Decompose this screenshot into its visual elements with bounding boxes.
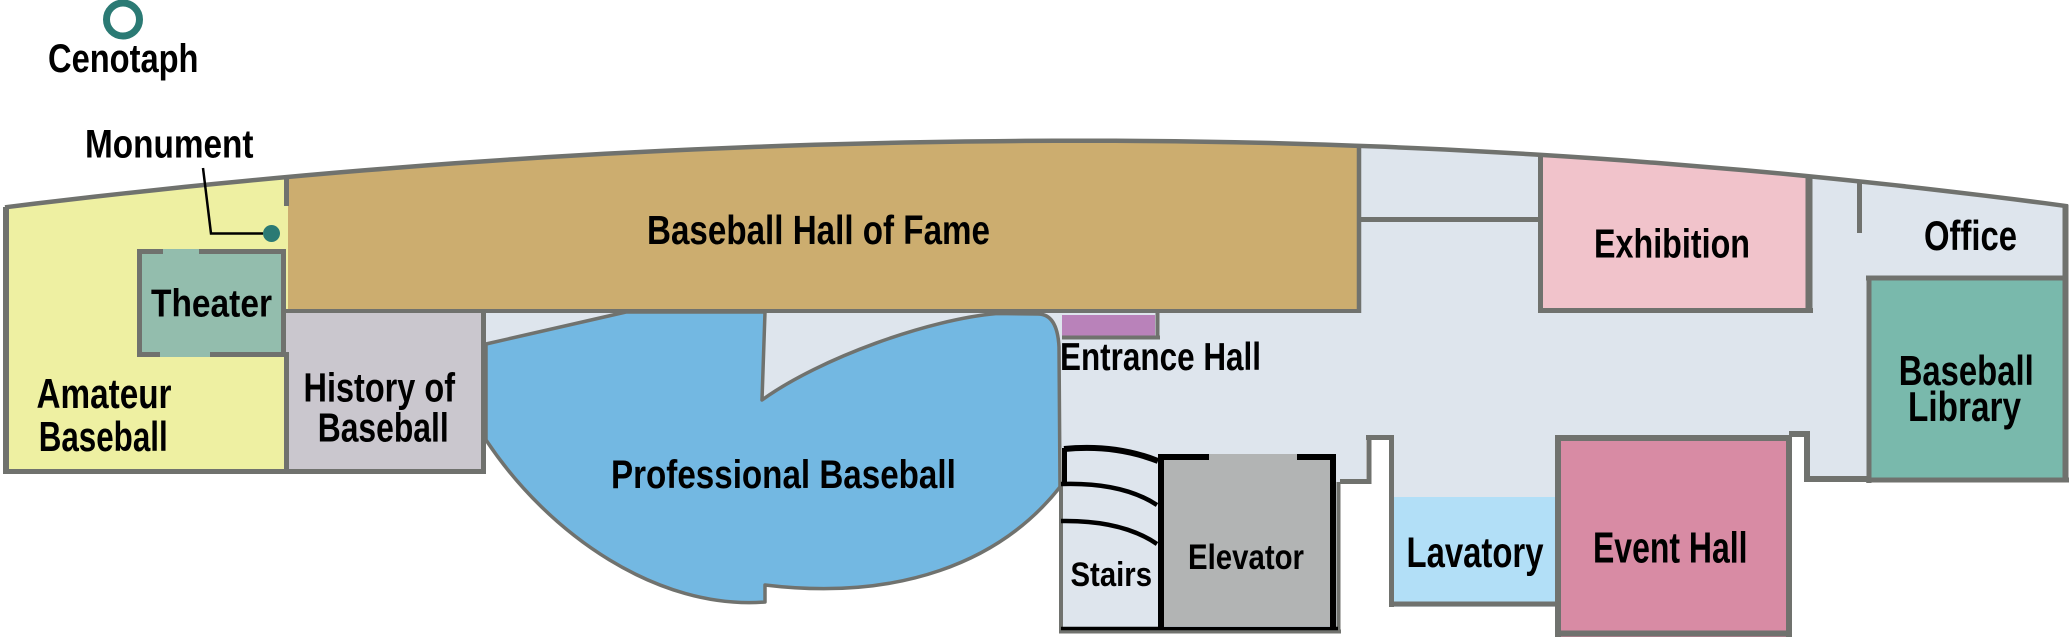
svg-text:Entrance Hall: Entrance Hall bbox=[1060, 336, 1261, 379]
svg-text:Library: Library bbox=[1908, 383, 2021, 430]
svg-text:Amateur: Amateur bbox=[37, 370, 172, 417]
svg-text:Elevator: Elevator bbox=[1188, 537, 1304, 577]
svg-text:Professional Baseball: Professional Baseball bbox=[611, 453, 956, 497]
svg-text:Cenotaph: Cenotaph bbox=[48, 37, 199, 81]
svg-text:Theater: Theater bbox=[151, 283, 272, 326]
svg-text:Baseball: Baseball bbox=[318, 405, 449, 451]
svg-text:Monument: Monument bbox=[85, 123, 254, 167]
svg-text:Stairs: Stairs bbox=[1071, 556, 1153, 594]
svg-text:Baseball: Baseball bbox=[39, 413, 168, 460]
svg-text:Baseball Hall of Fame: Baseball Hall of Fame bbox=[647, 207, 990, 253]
svg-text:Exhibition: Exhibition bbox=[1594, 221, 1750, 267]
svg-text:Office: Office bbox=[1924, 212, 2017, 259]
svg-text:Event Hall: Event Hall bbox=[1593, 524, 1748, 573]
svg-text:Lavatory: Lavatory bbox=[1407, 529, 1544, 577]
